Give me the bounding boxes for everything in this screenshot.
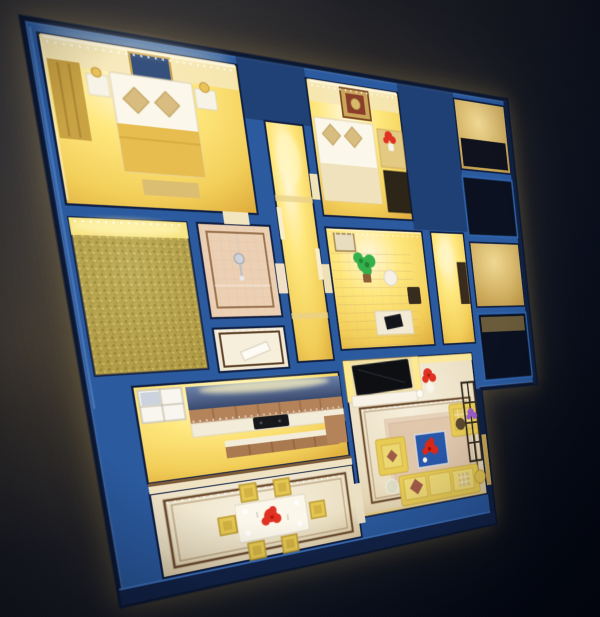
dining-chair (309, 500, 326, 518)
apartment-model (22, 18, 550, 606)
bathroom (197, 223, 283, 318)
dining-chair (248, 540, 266, 560)
lit-sliver (481, 316, 525, 332)
study (325, 227, 435, 350)
lintel (291, 312, 329, 319)
dining-chair (239, 483, 258, 502)
foyer (213, 326, 290, 372)
coffee-table (415, 431, 449, 468)
dining-chair (281, 534, 299, 553)
living-room (343, 353, 488, 517)
photo-stage (0, 0, 600, 617)
tile-grid (197, 223, 283, 318)
doorway-to-master (222, 211, 249, 225)
armchair-left (375, 436, 408, 476)
window-reflection (140, 391, 161, 405)
blanket (320, 163, 382, 204)
window-void (462, 176, 518, 237)
dining-chair (273, 478, 291, 497)
balcony-ledge-mid (470, 242, 525, 307)
dark-wardrobe (384, 171, 412, 213)
bedroom-2 (305, 78, 413, 220)
dining-chair (218, 516, 237, 536)
dark-chair (407, 287, 422, 304)
framed-art (333, 233, 355, 251)
